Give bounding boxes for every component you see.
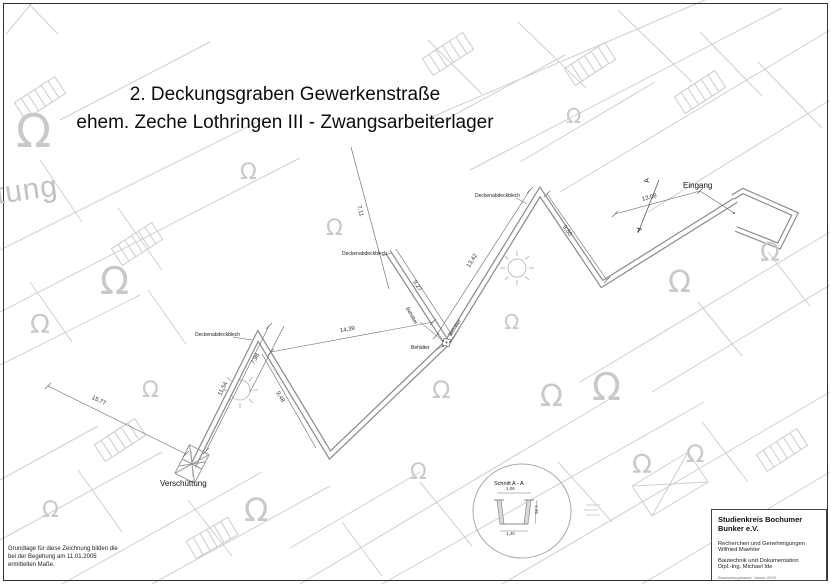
omega-symbol: Ω [668, 268, 691, 298]
drawing-sheet: tung Ω Ω Ω Ω Ω Ω Ω Ω Ω Ω Ω Ω Ω Ω Ω Ω Ω Ω… [0, 0, 831, 584]
dimension-lines [45, 147, 735, 457]
buried-end-label: Verschüttung [160, 479, 207, 488]
cover-sheet-label: Deckenabdeckblech [195, 332, 240, 338]
stairs-symbol [674, 71, 725, 114]
section-marker-a-bottom: A [634, 227, 642, 233]
entrance-label: Eingang [683, 181, 712, 190]
note-line-2: bei der Begehung am 11.01.2005 [8, 554, 118, 562]
omega-symbol: Ω [540, 382, 563, 412]
stairs-symbol [94, 419, 145, 462]
note-line-3: ermittelten Maße. [8, 562, 118, 570]
section-detail-circle [473, 464, 571, 558]
omega-symbol: Ω [142, 380, 159, 402]
profile-dim-lines [497, 493, 537, 531]
omega-symbol: Ω [760, 240, 780, 266]
section-dim-side: 1,46 [534, 505, 539, 514]
title-block-name1: Wilfried Maehler [718, 547, 820, 553]
title-block-status: Bearbeitungsstand: Januar 2005 [718, 575, 820, 580]
omega-symbol: Ω [244, 494, 268, 526]
omega-symbol: Ω [592, 368, 621, 406]
omega-symbol: Ω [100, 262, 129, 300]
omega-symbol: Ω [504, 312, 519, 332]
section-line-a-a [638, 180, 659, 233]
drawing-title: 2. Deckungsgraben Gewerkenstraße ehem. Z… [20, 84, 550, 134]
tree-symbol-icon [500, 251, 534, 285]
container-label: Behälter [411, 345, 430, 351]
source-note: Grundlage für diese Zeichnung bilden die… [8, 546, 118, 569]
profile-left-wall [497, 500, 504, 524]
cover-sheet-label: Deckenabdeckblech [342, 251, 387, 257]
omega-symbol: Ω [566, 106, 581, 126]
title-line-2: ehem. Zeche Lothringen III - Zwangsarbei… [20, 112, 550, 134]
omega-symbol: Ω [240, 162, 257, 184]
omega-symbol: Ω [632, 452, 652, 478]
section-dim-bottom: 1,40 [506, 531, 515, 536]
stairs-symbol [756, 429, 807, 472]
title-block-org: Studienkreis Bochumer Bunker e.V. [718, 515, 820, 533]
title-block: Studienkreis Bochumer Bunker e.V. Recher… [711, 509, 827, 581]
note-line-1: Grundlage für diese Zeichnung bilden die [8, 546, 118, 554]
omega-symbol: Ω [432, 378, 450, 402]
section-dim-top: 1,06 [506, 486, 515, 491]
stairs-symbol [186, 517, 238, 558]
omega-symbol: Ω [410, 462, 427, 484]
omega-symbol: Ω [326, 218, 343, 240]
title-block-name2: Dipl.-Ing. Michael Ide [718, 564, 820, 570]
title-line-1: 2. Deckungsgraben Gewerkenstraße [20, 84, 550, 106]
omega-symbol: Ω [30, 312, 50, 338]
trench-outline [193, 192, 736, 466]
stairs-symbol [422, 33, 473, 76]
cover-sheet-label: Deckenabdeckblech [475, 193, 520, 199]
label-leaders [233, 198, 527, 350]
omega-symbol: Ω [42, 500, 59, 522]
omega-symbol: Ω [686, 442, 704, 466]
